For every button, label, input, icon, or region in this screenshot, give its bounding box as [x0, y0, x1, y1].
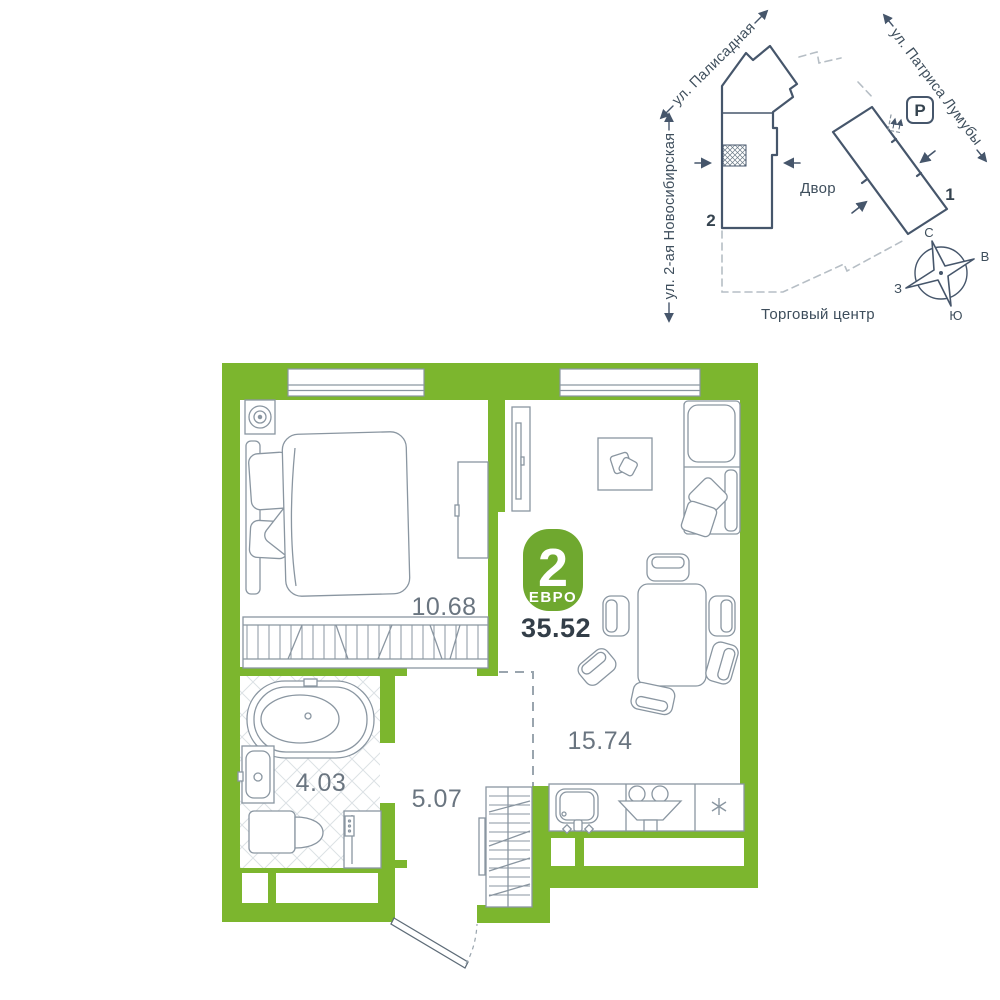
parking-arrow — [893, 119, 895, 128]
light-dot — [258, 415, 261, 418]
sofa — [680, 401, 740, 538]
washing-machine — [344, 811, 381, 868]
chair-back — [606, 600, 617, 632]
bathtub-basin — [261, 695, 339, 743]
building-2-outline[interactable] — [722, 46, 797, 228]
wall-segment — [488, 400, 505, 512]
entrance-door — [391, 918, 477, 968]
bed-duvet — [282, 431, 410, 596]
coffee-table — [598, 438, 652, 490]
chair-back — [721, 600, 732, 632]
badge-type-label: ЕВРО — [529, 589, 577, 606]
site-map: ул. Палисадная ул. Патриса Лумубы ул. 2-… — [661, 11, 989, 323]
mall-label: Торговый центр — [761, 306, 875, 323]
bathroom-area: 4.03 — [296, 769, 347, 797]
chair-back — [652, 557, 684, 568]
bedroom: 10.68 — [243, 400, 488, 668]
entrance-arrow — [852, 202, 866, 213]
parking-arrow — [899, 120, 901, 129]
dining-chair — [709, 596, 735, 636]
parking-letter: P — [914, 101, 925, 120]
street-novosibirskaya: ул. 2-ая Новосибирская — [662, 114, 678, 321]
entrance-arrow — [921, 151, 935, 162]
hallway-area: 5.07 — [412, 785, 463, 813]
dresser-body — [458, 462, 488, 558]
bathroom-sink — [238, 746, 274, 803]
sink-faucet — [574, 820, 582, 831]
toilet-tank — [249, 811, 295, 853]
burner — [652, 786, 668, 802]
floorplan-page: ул. Палисадная ул. Патриса Лумубы ул. 2-… — [0, 0, 1000, 1000]
hallway: 5.07 — [391, 672, 533, 968]
ceiling-light-icon — [245, 400, 275, 434]
window-glass — [288, 369, 424, 396]
bathroom: 4.03 — [238, 676, 381, 868]
building-2-number: 2 — [706, 211, 715, 230]
bathtub-faucet — [304, 679, 317, 686]
dining-chair — [603, 596, 629, 636]
dresser-handle — [455, 505, 459, 516]
dining-chair — [704, 640, 740, 686]
wall-segment — [488, 510, 498, 668]
living-area: 15.74 — [567, 727, 632, 755]
dining-chair — [647, 554, 689, 581]
open-boundary-dashed — [499, 672, 533, 786]
compass-east: В — [981, 249, 990, 264]
street-arrow — [884, 15, 893, 26]
window-glass — [560, 369, 700, 396]
street-arrow — [977, 150, 986, 161]
boundary-line — [722, 231, 906, 292]
street-arrow — [755, 11, 767, 23]
window-living — [560, 369, 700, 396]
sofa-cushion — [688, 405, 735, 462]
door-swing-arc — [466, 924, 477, 964]
washer-knob — [349, 825, 351, 827]
wardrobe-hangers — [246, 625, 485, 659]
kitchen — [549, 784, 744, 833]
sink-tap — [254, 773, 262, 781]
burner — [629, 786, 645, 802]
compass-north: С — [924, 225, 933, 240]
yard-label: Двор — [800, 180, 836, 197]
hall-wardrobe-side-panel — [479, 818, 485, 875]
street-patrisa-label: ул. Патриса Лумубы — [887, 25, 985, 148]
wall-segment — [380, 860, 407, 868]
parking-badge: P — [888, 97, 933, 133]
compass-south: Ю — [949, 308, 962, 323]
wall-niche — [242, 873, 268, 903]
street-arrow — [661, 106, 673, 118]
tv-mount — [521, 457, 524, 465]
street-patrisa: ул. Патриса Лумубы — [884, 15, 986, 161]
sofa-back-cushion — [725, 470, 737, 531]
building-1-outline[interactable] — [833, 107, 947, 234]
hood-duct — [644, 820, 657, 831]
sink-drain — [562, 812, 566, 816]
building-1-number: 1 — [945, 185, 954, 204]
wardrobe — [243, 617, 488, 668]
building-1-notch — [862, 180, 866, 183]
wall-segment — [222, 363, 240, 922]
dresser — [455, 462, 488, 558]
floorplan-canvas: ул. Палисадная ул. Патриса Лумубы ул. 2-… — [0, 0, 1000, 1000]
bathtub-drain — [305, 713, 311, 719]
bedroom-area: 10.68 — [411, 593, 476, 621]
street-novosibirskaya-label: ул. 2-ая Новосибирская — [662, 133, 678, 300]
apartment-type-badge: 2 ЕВРО — [523, 529, 583, 611]
dining-chair — [575, 645, 619, 688]
compass-rose: С В З Ю — [894, 225, 989, 323]
wall-segment — [380, 676, 395, 743]
washer-knob — [349, 830, 351, 832]
dining-set — [575, 554, 740, 716]
washer-knob — [349, 820, 351, 822]
sink-pipe — [238, 772, 243, 781]
boundary-line — [858, 82, 874, 99]
hall-wardrobe — [479, 787, 532, 907]
tv-screen — [516, 423, 521, 499]
door-leaf — [391, 918, 468, 968]
boundary-line — [799, 52, 841, 63]
wall-niche — [276, 873, 378, 903]
tv-unit — [512, 407, 530, 511]
wall-niche — [584, 838, 744, 866]
total-area: 35.52 — [521, 613, 591, 643]
window-bedroom — [288, 369, 424, 396]
floor-plan: 10.68 — [222, 363, 758, 968]
bed — [246, 431, 410, 596]
wall-segment — [380, 803, 395, 868]
dining-table — [638, 584, 706, 686]
compass-west: З — [894, 281, 902, 296]
compass-center-dot — [939, 271, 943, 275]
wall-niche — [551, 838, 575, 866]
apartment-location-marker — [723, 145, 746, 166]
